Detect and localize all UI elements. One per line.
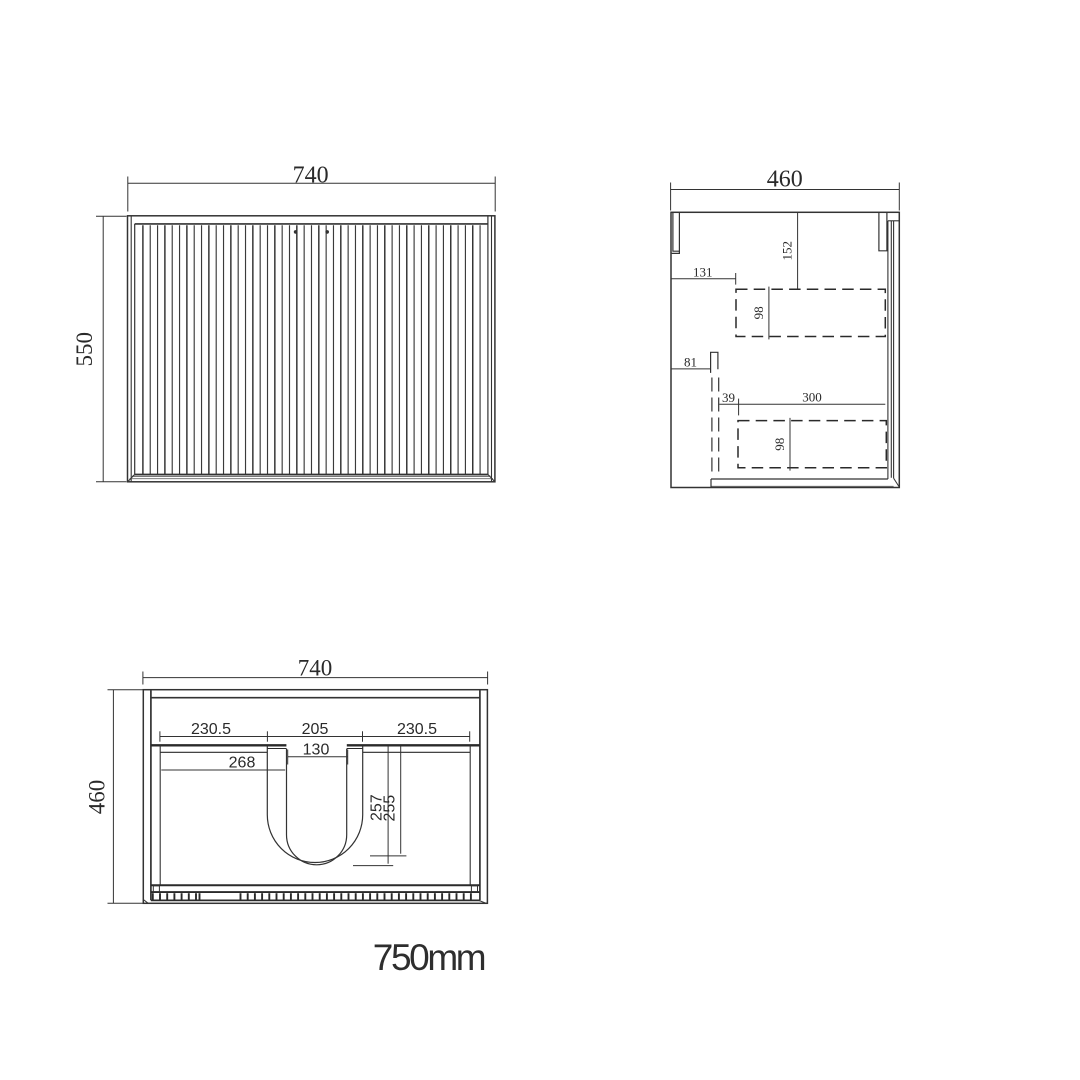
svg-text:230.5: 230.5: [397, 721, 437, 738]
svg-text:130: 130: [303, 742, 330, 759]
svg-text:131: 131: [693, 264, 713, 279]
svg-text:740: 740: [298, 655, 333, 680]
svg-text:550: 550: [72, 332, 97, 367]
svg-text:39: 39: [722, 390, 735, 405]
svg-text:152: 152: [780, 241, 795, 260]
svg-text:460: 460: [767, 167, 803, 193]
svg-text:460: 460: [84, 780, 109, 815]
svg-text:740: 740: [293, 163, 329, 189]
svg-text:98: 98: [772, 438, 787, 451]
svg-text:205: 205: [302, 721, 329, 738]
svg-text:300: 300: [802, 389, 822, 404]
svg-text:255: 255: [382, 795, 399, 822]
svg-text:750mm: 750mm: [373, 937, 485, 978]
svg-text:81: 81: [684, 354, 697, 369]
svg-text:98: 98: [751, 306, 766, 319]
svg-text:268: 268: [229, 754, 256, 771]
svg-text:230.5: 230.5: [191, 721, 231, 738]
